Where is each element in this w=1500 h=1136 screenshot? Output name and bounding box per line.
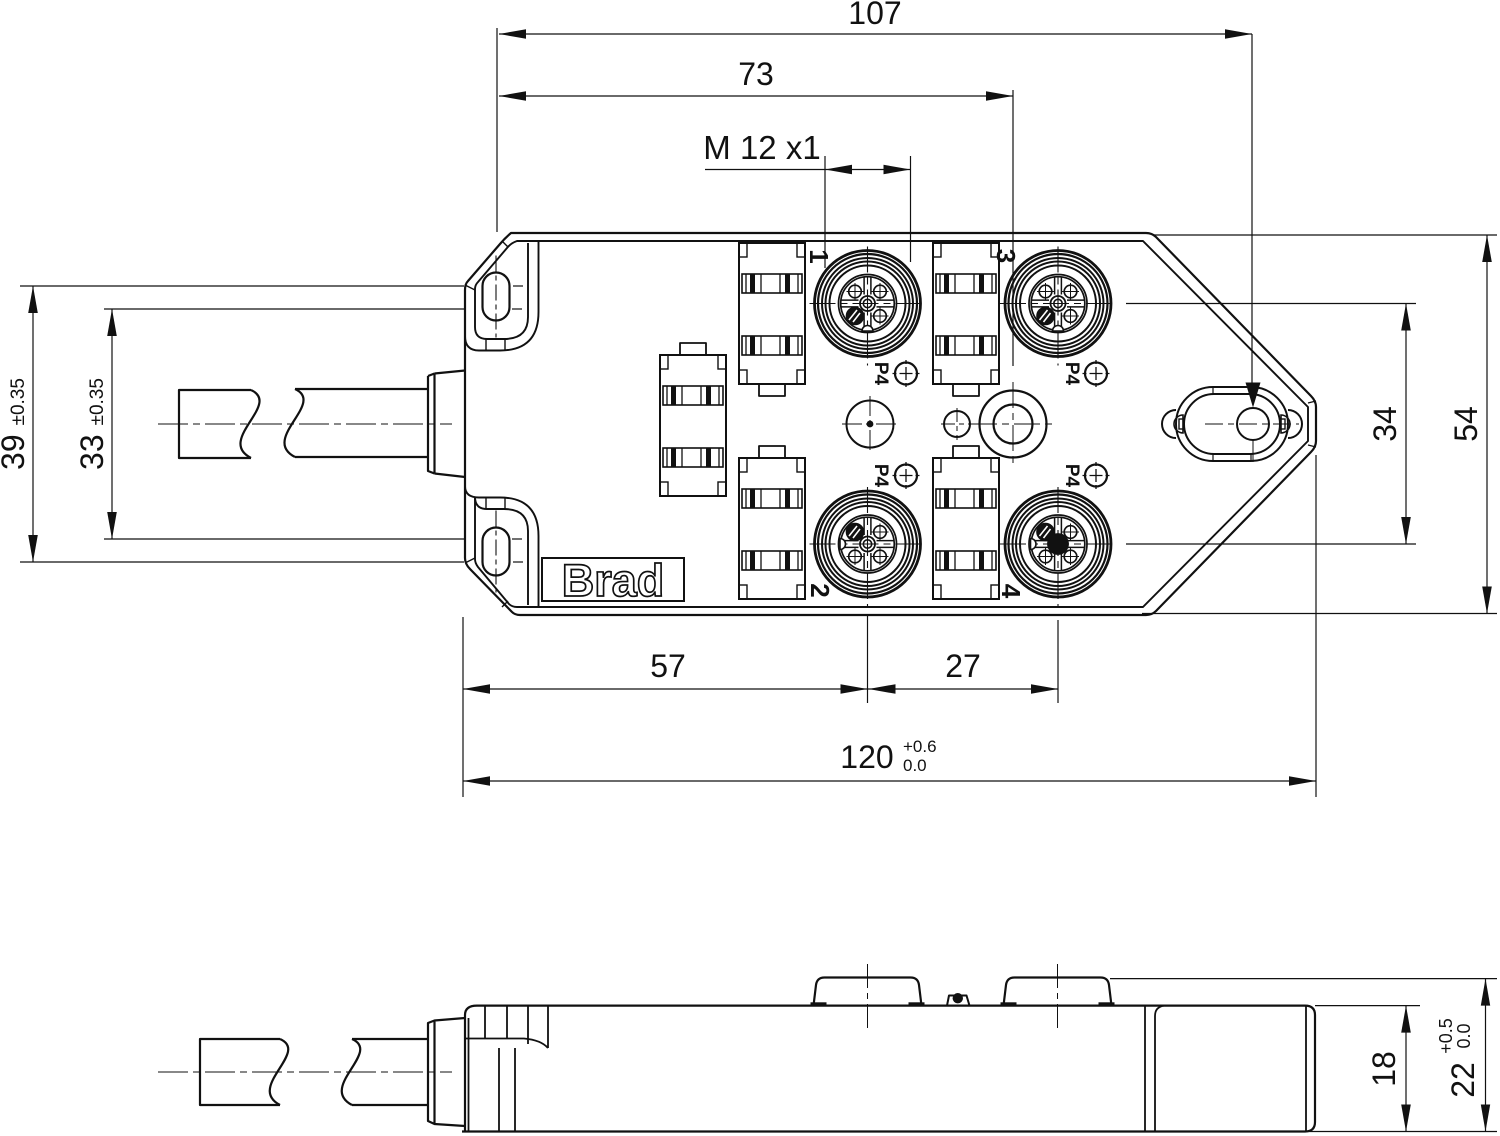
svg-text:1: 1 <box>804 249 834 263</box>
svg-text:57: 57 <box>650 648 686 684</box>
svg-text:27: 27 <box>945 648 981 684</box>
svg-text:0.0: 0.0 <box>1454 1023 1474 1048</box>
svg-text:M 12 x1: M 12 x1 <box>703 129 820 166</box>
svg-text:2: 2 <box>805 583 835 597</box>
svg-text:+0.6: +0.6 <box>903 737 937 756</box>
svg-text:4: 4 <box>996 584 1026 599</box>
svg-text:P4: P4 <box>870 362 891 386</box>
svg-text:107: 107 <box>848 0 901 31</box>
svg-text:P4: P4 <box>1061 464 1082 488</box>
svg-text:P4: P4 <box>870 464 891 488</box>
svg-text:22: 22 <box>1445 1062 1481 1098</box>
svg-text:Brad: Brad <box>562 555 665 606</box>
svg-text:18: 18 <box>1366 1051 1402 1087</box>
svg-text:P4: P4 <box>1061 362 1082 386</box>
svg-text:+0.5: +0.5 <box>1436 1018 1456 1054</box>
svg-text:34: 34 <box>1367 406 1403 442</box>
svg-text:3: 3 <box>991 249 1021 263</box>
svg-text:54: 54 <box>1448 406 1484 442</box>
svg-text:120: 120 <box>840 739 893 775</box>
svg-text:0.0: 0.0 <box>903 756 927 775</box>
svg-text:73: 73 <box>738 56 774 92</box>
